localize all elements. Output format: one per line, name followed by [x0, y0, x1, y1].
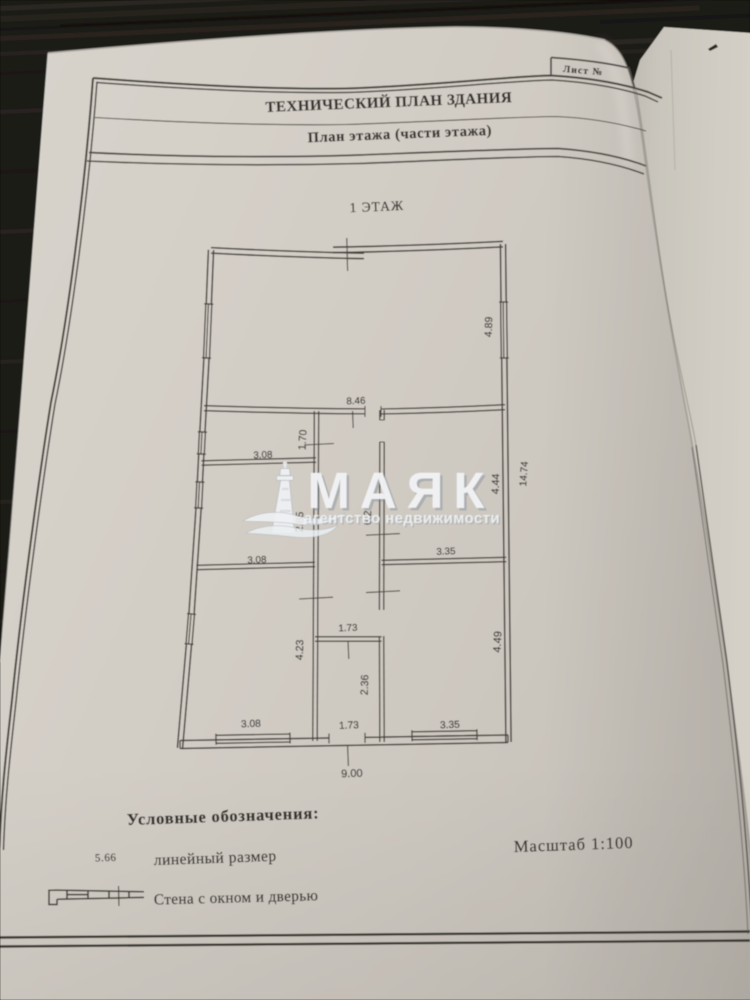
- svg-text:4.23: 4.23: [294, 639, 307, 660]
- svg-text:1.73: 1.73: [338, 623, 358, 635]
- svg-text:3.35: 3.35: [436, 546, 456, 558]
- svg-text:1.70: 1.70: [296, 429, 309, 450]
- svg-text:3.08: 3.08: [247, 555, 267, 567]
- svg-text:2.36: 2.36: [359, 674, 372, 695]
- svg-text:1 ЭТАЖ: 1 ЭТАЖ: [349, 198, 404, 215]
- svg-text:3.08: 3.08: [241, 719, 262, 731]
- svg-text:1.73: 1.73: [339, 720, 360, 732]
- svg-text:4.89: 4.89: [483, 316, 496, 337]
- svg-text:8.46: 8.46: [346, 396, 366, 408]
- svg-text:9.00: 9.00: [341, 768, 363, 781]
- svg-text:3.35: 3.35: [440, 720, 461, 732]
- svg-text:агентство недвижимости: агентство недвижимости: [304, 510, 500, 527]
- svg-text:3.08: 3.08: [253, 450, 273, 462]
- svg-text:14.74: 14.74: [518, 461, 531, 487]
- svg-text:4.49: 4.49: [491, 631, 504, 653]
- svg-text:5.66: 5.66: [95, 852, 117, 865]
